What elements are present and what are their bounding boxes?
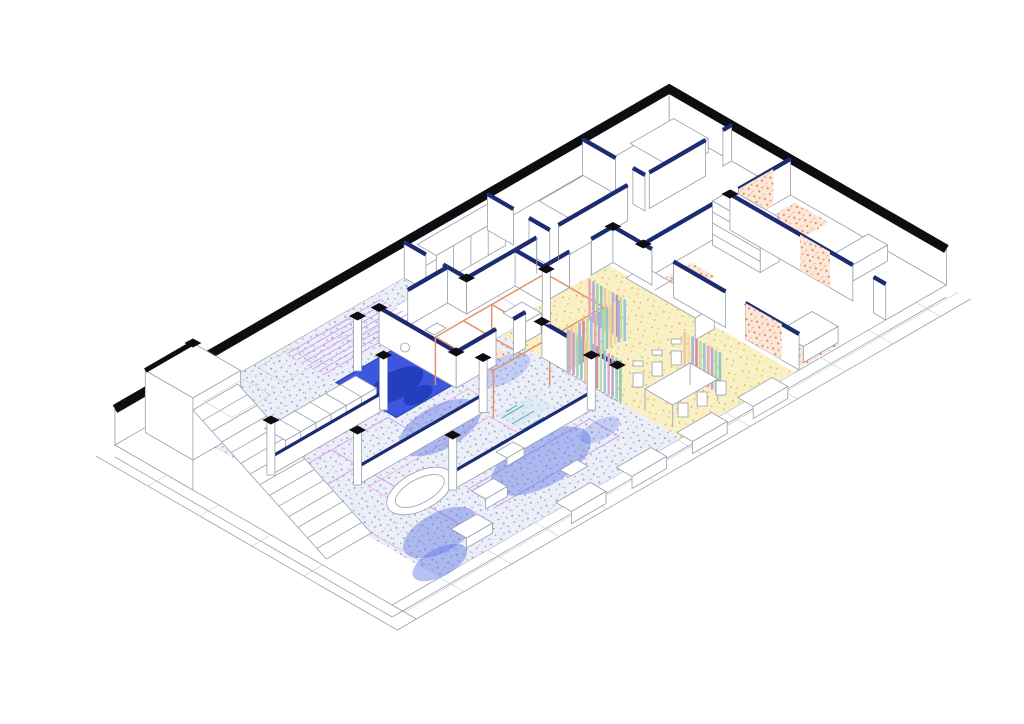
axonometric-floor-plan-page bbox=[0, 0, 1024, 724]
floor-plan-drawing bbox=[0, 0, 1024, 724]
